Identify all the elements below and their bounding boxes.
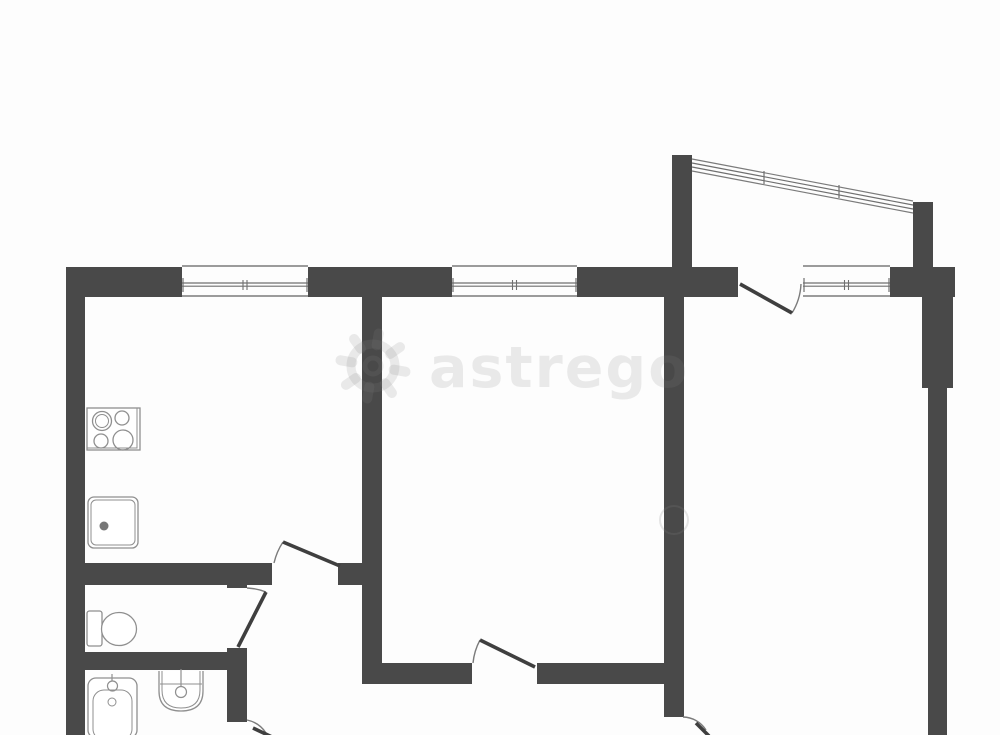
wall-exterior-right-pilaster [922, 297, 953, 388]
kitchen-sink-drain [100, 522, 109, 531]
wall-balcony-left [672, 155, 692, 267]
floorplan-image: astrego [0, 0, 1000, 735]
kitchen-sink [88, 497, 138, 548]
wall-balcony-right [913, 202, 933, 267]
toilet-bowl [102, 613, 137, 646]
wall-exterior-top-mid2 [577, 267, 738, 297]
toilet-tank [87, 611, 102, 646]
watermark-text: astrego [429, 335, 689, 401]
floorplan-svg: astrego [0, 0, 1000, 735]
wall-bathroom-right [227, 670, 247, 722]
wall-hall-bottom-right [537, 663, 684, 684]
wall-kitchen-door-pillar [338, 563, 382, 585]
wall-wc-right-top-stub [227, 563, 247, 588]
wall-hall-bottom-left [362, 663, 472, 684]
wall-partition-kitchen-living [362, 297, 382, 683]
wall-wc-bath-divider [66, 652, 247, 670]
bathroom-sink [159, 669, 203, 711]
toilet [87, 611, 137, 646]
wall-exterior-right [928, 388, 947, 735]
wall-exterior-top-right [890, 267, 955, 297]
bathtub-outer [88, 678, 137, 735]
bathtub [88, 674, 137, 735]
kitchen-sink-outer [88, 497, 138, 548]
stove [87, 408, 140, 450]
wall-exterior-top-mid [308, 267, 452, 297]
